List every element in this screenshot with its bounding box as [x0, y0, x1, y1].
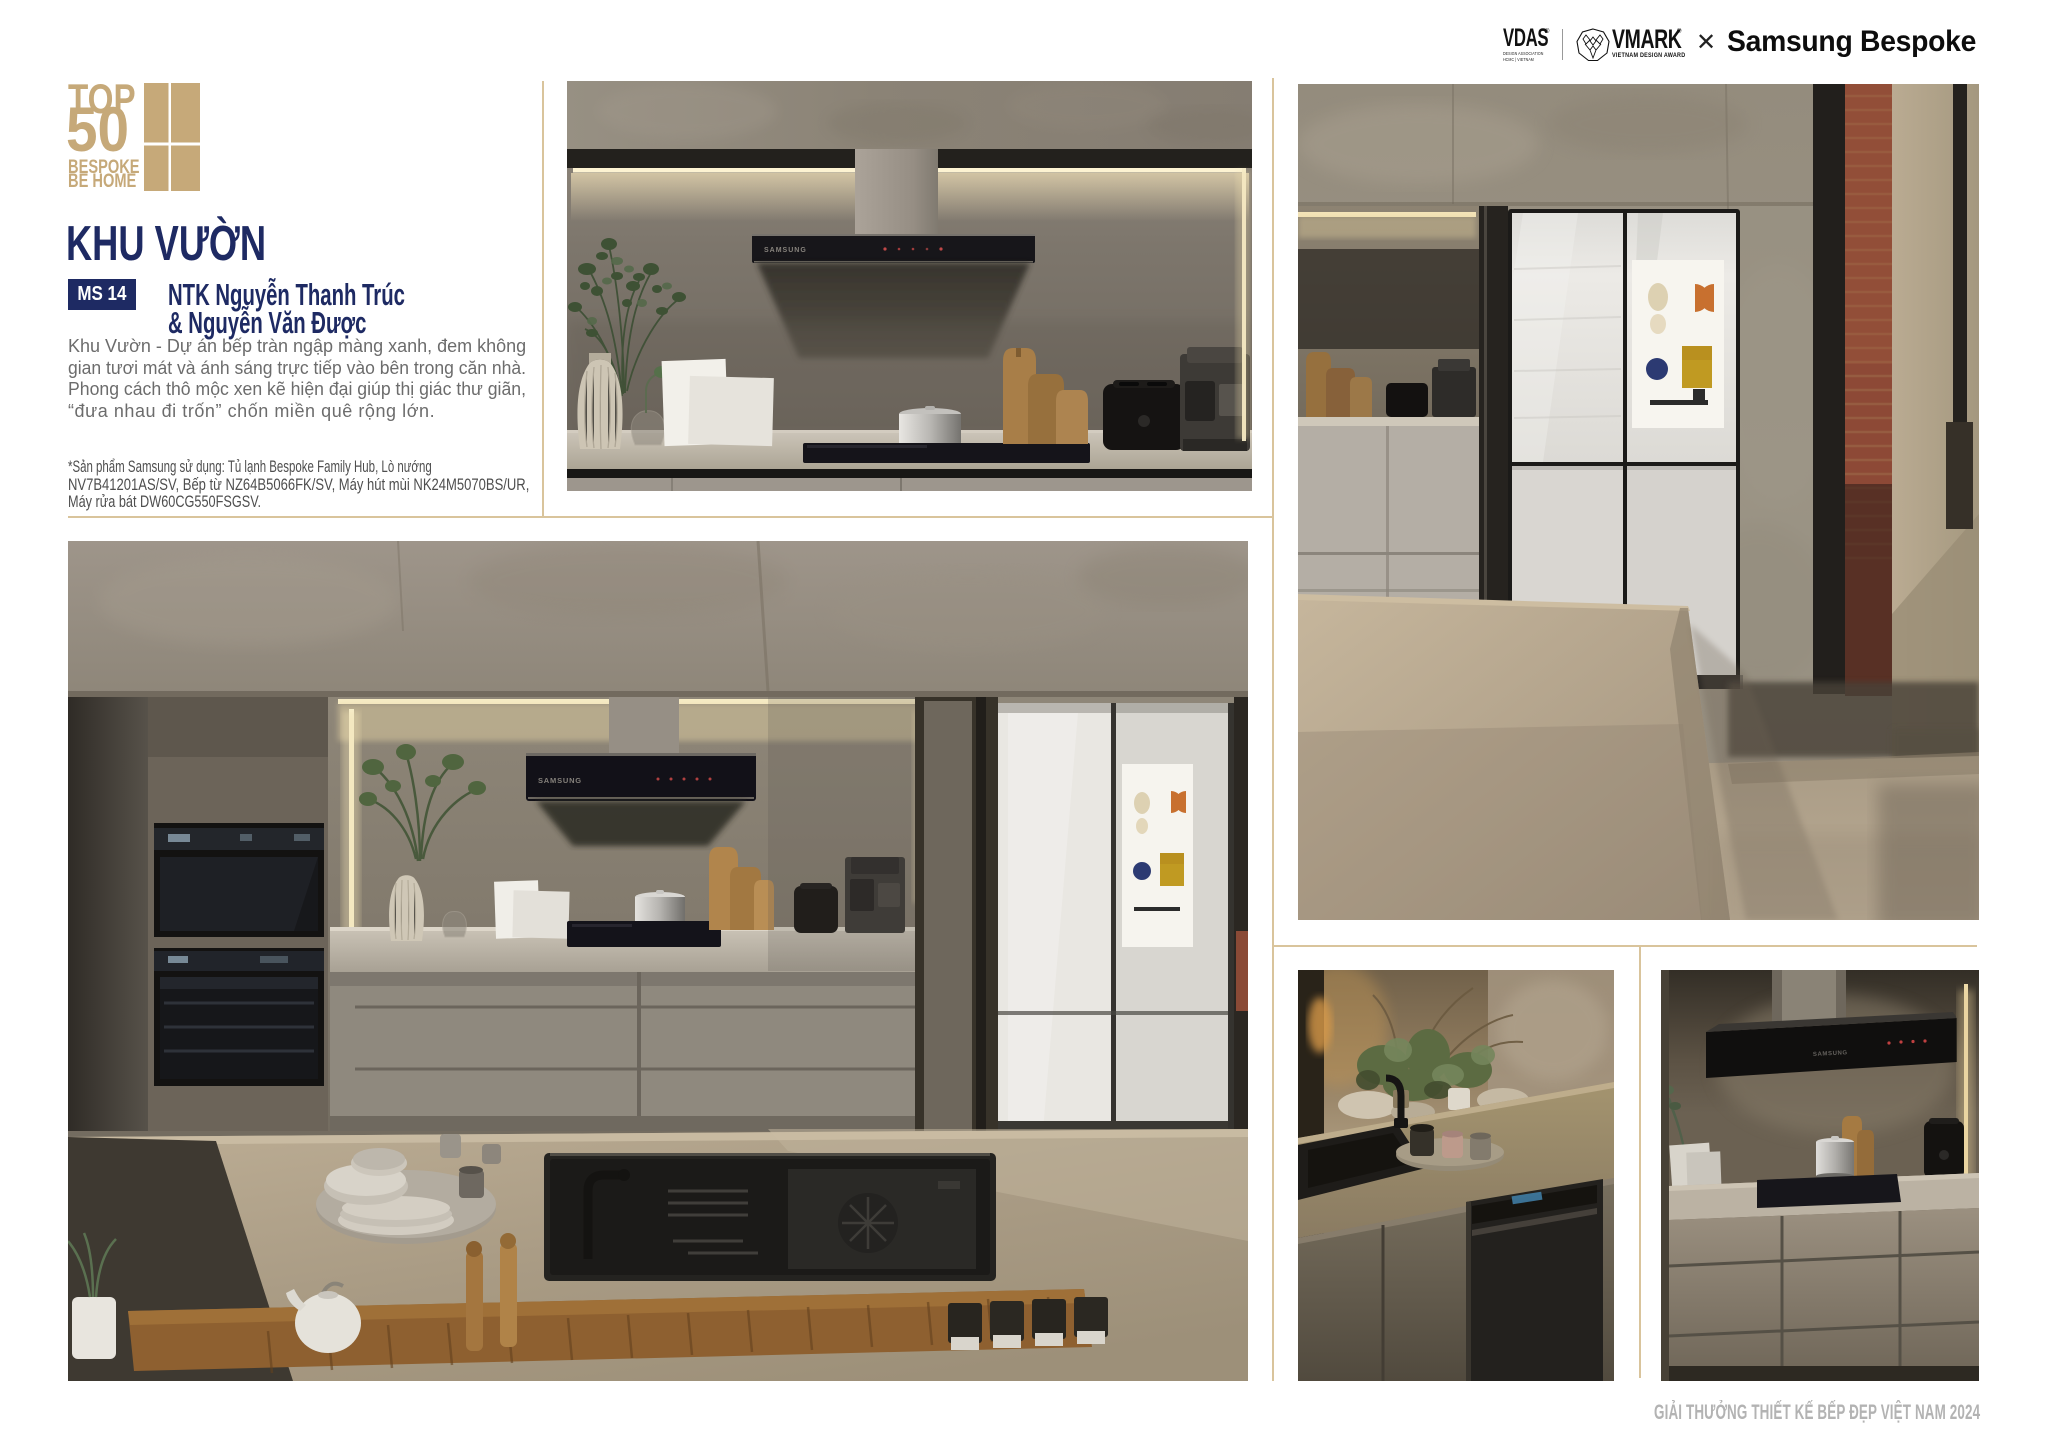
svg-text:SAMSUNG: SAMSUNG	[538, 776, 582, 785]
svg-text:SAMSUNG: SAMSUNG	[764, 247, 807, 254]
